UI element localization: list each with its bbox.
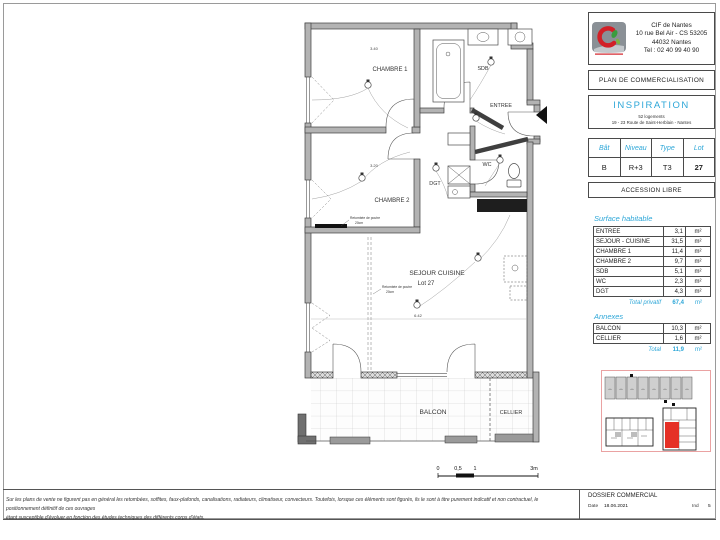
- scale-1: 1: [474, 466, 477, 472]
- company-address1: 10 rue Bel Air - CS 53205: [629, 30, 714, 38]
- footer-divider: [579, 489, 580, 520]
- surface-label: CHAMBRE 1: [594, 247, 664, 257]
- room-label-chambre2: CHAMBRE 2: [374, 198, 410, 204]
- light-icon: [433, 163, 439, 172]
- table-row: CHAMBRE 111,4m²: [594, 247, 711, 257]
- annexes-total-row: Total 11,9 m²: [593, 347, 711, 353]
- surface-unit: m²: [686, 237, 711, 247]
- lot-value-niveau: R+3: [620, 158, 652, 177]
- surface-unit: m²: [686, 227, 711, 237]
- annexes-title: Annexes: [594, 312, 623, 321]
- annexe-label: CELLIER: [594, 334, 664, 344]
- room-label-dgt: DGT: [429, 181, 441, 187]
- light-icon: [475, 253, 481, 262]
- surface-label: SEJOUR - CUISINE: [594, 237, 664, 247]
- surface-label: DGT: [594, 287, 664, 297]
- room-label-sdb: SDB: [477, 66, 488, 72]
- surface-label: SDB: [594, 267, 664, 277]
- scale-0: 0: [437, 466, 440, 472]
- surface-total-row: Total privatif 67,4 m²: [593, 300, 711, 306]
- surface-value: 2,3: [664, 277, 686, 287]
- site-plan-building-right: [663, 403, 696, 450]
- accession-box: ACCESSION LIBRE: [588, 182, 715, 198]
- light-icon: [414, 300, 420, 309]
- company-address2: 44032 Nantes: [629, 39, 714, 47]
- dim-chambre2: 3.20: [370, 163, 379, 168]
- program-name: INSPIRATION: [589, 100, 714, 111]
- room-label-sejour: SEJOUR CUISINE: [409, 270, 465, 277]
- annexe-value: 1,6: [664, 334, 686, 344]
- diagonal-wall-entree-wc: [475, 139, 528, 152]
- surface-value: 31,5: [664, 237, 686, 247]
- svg-text:↔: ↔: [608, 386, 613, 392]
- bathroom-sink: [468, 29, 498, 45]
- site-plan-map: ↔↔↔↔ ↔↔↔↔: [601, 370, 711, 457]
- site-plan-building-left: [606, 418, 653, 446]
- ind-label: Ind: [692, 504, 699, 509]
- disclaimer-line1: Sur les plans de vente ne figurent pas e…: [6, 496, 572, 514]
- toilet: [507, 164, 521, 188]
- room-label-wc: WC: [483, 162, 492, 168]
- date-value: 18.06.2021: [604, 504, 628, 509]
- table-row: CHAMBRE 29,7m²: [594, 257, 711, 267]
- table-row: SDB5,1m²: [594, 267, 711, 277]
- facade-wall: [311, 372, 527, 378]
- annexe-label: BALCON: [594, 324, 664, 334]
- annexes-table: BALCON10,3m² CELLIER1,6m²: [593, 323, 711, 344]
- beam-label-1: Retombée de poutre: [350, 216, 380, 220]
- room-label-cellier: CELLIER: [500, 410, 523, 416]
- disclaimer-line2: étant susceptible d'évoluer en fonction …: [6, 514, 572, 523]
- footer-top-line: [3, 489, 716, 490]
- table-row: DGT4,3m²: [594, 287, 711, 297]
- surface-total-label: Total privatif: [593, 300, 664, 306]
- surface-title: Surface habitable: [594, 214, 652, 223]
- company-box: CIF de Nantes 10 rue Bel Air - CS 53205 …: [588, 12, 715, 65]
- cif-logo: [589, 22, 629, 56]
- ind-value: 5: [708, 504, 711, 509]
- svg-text:↔: ↔: [674, 386, 679, 392]
- surface-value: 11,4: [664, 247, 686, 257]
- svg-text:↔: ↔: [652, 386, 657, 392]
- room-label-chambre1: CHAMBRE 1: [372, 67, 408, 73]
- svg-text:↔: ↔: [619, 386, 624, 392]
- surface-table: ENTREE3,1m² SEJOUR - CUISINE31,5m² CHAMB…: [593, 226, 711, 297]
- document-page: Retombée de poutre 20cm Retombée de pout…: [0, 0, 720, 540]
- lot-number-label: Lot 27: [418, 281, 435, 287]
- light-icon: [497, 155, 503, 164]
- surface-total-unit: m²: [686, 300, 711, 306]
- surface-label: WC: [594, 277, 664, 287]
- lot-header-lot: Lot: [683, 139, 715, 158]
- date-label: Date: [588, 504, 598, 509]
- washer: [508, 29, 532, 45]
- program-box: INSPIRATION 52 logements 19 - 23 Route d…: [588, 95, 715, 129]
- program-sub2: 19 - 23 Route de Saint-Herblain - Nantes: [589, 120, 714, 126]
- light-icon: [365, 80, 371, 89]
- dossier-title: DOSSIER COMMERCIAL: [588, 493, 657, 499]
- beam-size-1: 20cm: [355, 221, 363, 225]
- annexes-total-value: 11,9: [664, 347, 686, 353]
- lot-header-type: Type: [652, 139, 684, 158]
- window-symbols: [307, 77, 335, 352]
- room-label-entree: ENTREE: [490, 103, 512, 109]
- surface-unit: m²: [686, 257, 711, 267]
- annexe-unit: m²: [686, 334, 711, 344]
- beam-size-2: 20cm: [386, 290, 394, 294]
- surface-value: 3,1: [664, 227, 686, 237]
- lot-header-niveau: Niveau: [620, 139, 652, 158]
- lot-header-bat: Bât: [589, 139, 621, 158]
- doc-type-box: PLAN DE COMMERCIALISATION: [588, 70, 715, 90]
- kitchen-counter: [477, 199, 527, 300]
- surface-unit: m²: [686, 277, 711, 287]
- beam-annotations: Retombée de poutre 20cm Retombée de pout…: [315, 216, 412, 371]
- bathtub: [433, 40, 464, 102]
- surface-value: 4,3: [664, 287, 686, 297]
- surface-unit: m²: [686, 287, 711, 297]
- company-tel: Tel : 02 40 99 40 90: [629, 47, 714, 55]
- svg-text:↔: ↔: [685, 386, 690, 392]
- site-plan-units: ↔↔↔↔ ↔↔↔↔: [605, 374, 692, 403]
- table-row: SEJOUR - CUISINE31,5m²: [594, 237, 711, 247]
- lot-value-type: T3: [652, 158, 684, 177]
- table-row: WC2,3m²: [594, 277, 711, 287]
- annexes-total-unit: m²: [686, 347, 711, 353]
- svg-text:↔: ↔: [641, 386, 646, 392]
- surface-unit: m²: [686, 247, 711, 257]
- scale-bar: 0 0,5 1 3m: [437, 466, 539, 478]
- highlighted-lot: [665, 422, 679, 448]
- light-icon: [359, 173, 365, 182]
- light-icon: [488, 57, 494, 66]
- disclaimer-text: Sur les plans de vente ne figurent pas e…: [6, 496, 572, 523]
- surface-unit: m²: [686, 267, 711, 277]
- table-row: BALCON10,3m²: [594, 324, 711, 334]
- table-row: ENTREE3,1m²: [594, 227, 711, 237]
- beam-label-2: Retombée de poutre: [382, 285, 412, 289]
- floor-plan: Retombée de poutre 20cm Retombée de pout…: [288, 14, 564, 484]
- surface-value: 9,7: [664, 257, 686, 267]
- surface-value: 5,1: [664, 267, 686, 277]
- lot-value-lot: 27: [683, 158, 715, 177]
- svg-text:↔: ↔: [663, 386, 668, 392]
- surface-label: CHAMBRE 2: [594, 257, 664, 267]
- annexe-unit: m²: [686, 324, 711, 334]
- scale-3m: 3m: [530, 466, 538, 472]
- scale-05: 0,5: [454, 466, 462, 472]
- svg-text:↔: ↔: [630, 386, 635, 392]
- table-row: CELLIER1,6m²: [594, 334, 711, 344]
- room-label-balcon: BALCON: [419, 409, 446, 416]
- dim-sejour: 6.42: [414, 313, 423, 318]
- surface-total-value: 67,4: [664, 300, 686, 306]
- dim-chambre1: 3.40: [370, 46, 379, 51]
- utility-closets: [448, 133, 470, 198]
- surface-label: ENTREE: [594, 227, 664, 237]
- annexe-value: 10,3: [664, 324, 686, 334]
- lot-value-bat: B: [589, 158, 621, 177]
- lot-table: Bât Niveau Type Lot B R+3 T3 27: [588, 138, 715, 177]
- annexes-total-label: Total: [593, 347, 664, 353]
- company-name: CIF de Nantes: [629, 22, 714, 30]
